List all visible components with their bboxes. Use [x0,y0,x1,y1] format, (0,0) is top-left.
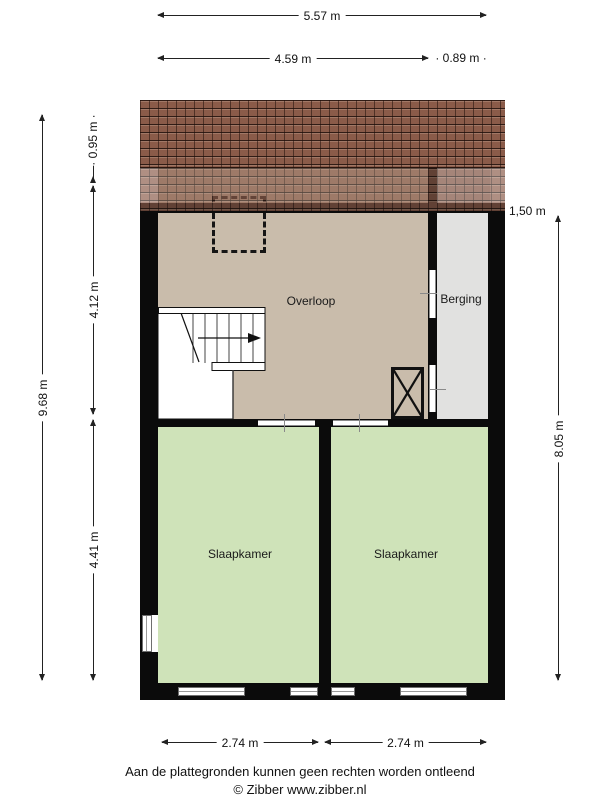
headroom-height-label: 1,50 m [509,204,546,218]
dim-right-total: 8.05 m [558,216,559,680]
dim-bottom-right: 2.74 m [325,742,486,743]
roof-tiles [140,100,505,168]
staircase-top-strip [159,308,266,314]
dim-bottom-left: 2.74 m [162,742,318,743]
window-bottom-3 [331,687,355,696]
dim-top-total-label: 5.57 m [299,9,346,23]
window-bottom-4 [400,687,467,696]
wall-left [140,211,158,652]
wall-bedrooms-middle [319,419,331,700]
dim-bottom-right-label: 2.74 m [382,736,429,750]
window-left-wall [142,615,152,652]
floorplan-page: Overloop Berging Slaapkamer Slaapkamer 5… [0,0,600,800]
dim-left-bottom: 4.41 m [93,420,94,680]
window-left-gap [152,615,158,652]
wall-right [488,211,505,700]
window-bottom-1 [178,687,245,696]
dim-top-right-label: · 0.89 m · [435,51,486,65]
room-label-slaapkamer-left: Slaapkamer [208,547,272,561]
dim-dot: · [483,51,487,65]
window-bottom-2 [290,687,318,696]
dim-left-mid-label: 4.12 m [87,277,101,324]
door-tick-berging-upper [420,293,437,294]
dim-left-bottom-label: 4.41 m [87,527,101,574]
door-opening-slaapkamer-right [333,420,388,426]
door-tick-slaapkamer-right [359,414,360,432]
door-tick-berging-lower [430,389,446,390]
roof-tiles-overlap [140,168,505,211]
dim-dot: · [86,162,100,166]
dim-top-total: 5.57 m [158,15,486,16]
dim-dot: · [435,51,439,65]
door-opening-berging-upper [429,270,436,318]
dim-bottom-left-label: 2.74 m [217,736,264,750]
dim-dot: · [86,114,100,118]
staircase-bottom-strip [212,363,265,371]
staircase [158,307,266,420]
footer-disclaimer: Aan de plattegronden kunnen geen rechten… [0,764,600,779]
shaft-box-icon [391,367,424,419]
dim-top-left: 4.59 m [158,58,428,59]
dim-left-total: 9.68 m [42,115,43,680]
room-label-overloop: Overloop [287,294,336,308]
door-opening-slaapkamer-left [258,420,315,426]
footer-credit: © Zibber www.zibber.nl [0,782,600,797]
room-label-slaapkamer-right: Slaapkamer [374,547,438,561]
dim-left-roof-label: · 0.95 m · [86,114,100,165]
dim-top-left-label: 4.59 m [270,52,317,66]
dim-right-total-label: 8.05 m [552,415,566,462]
door-tick-slaapkamer-left [284,414,285,432]
room-label-berging: Berging [440,292,481,306]
dim-left-total-label: 9.68 m [36,374,50,421]
dim-left-mid: 4.12 m [93,186,94,414]
